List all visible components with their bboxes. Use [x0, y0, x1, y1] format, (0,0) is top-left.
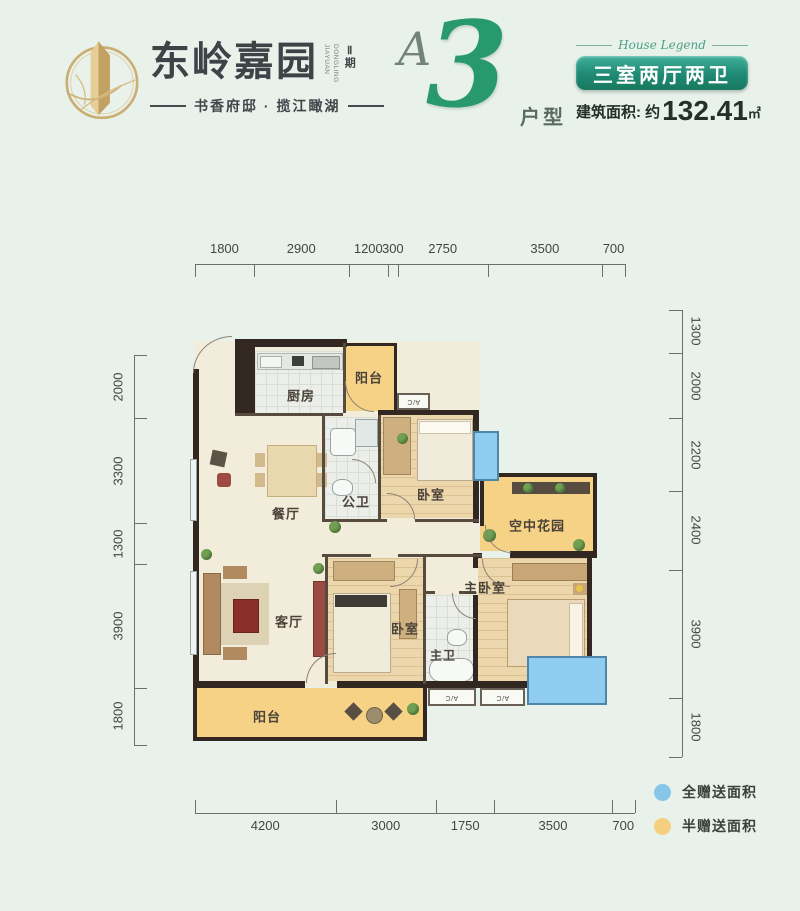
dimension-label: 3000 — [371, 818, 400, 833]
dimension-label: 1800 — [210, 241, 239, 256]
living-sofa — [203, 573, 221, 655]
pillows-bedroom-top — [419, 421, 471, 434]
wall — [322, 415, 325, 522]
room-label-kitchen: 厨房 — [287, 386, 315, 405]
unit-number: 3 — [426, 6, 508, 124]
kitchen-stove — [292, 356, 304, 366]
dimension-tick — [635, 800, 636, 813]
legend-dot-full-gift — [654, 784, 671, 801]
living-coffee-table — [233, 599, 259, 633]
wall — [473, 479, 479, 523]
room-label-sky-garden: 空中花园 — [509, 516, 565, 535]
dimension-ruler-bottom: 4200300017503500700 — [195, 800, 635, 840]
wall — [423, 591, 435, 594]
dimension-line — [682, 310, 683, 757]
wall — [337, 681, 529, 688]
decor-pot — [217, 473, 231, 487]
wardrobe-master — [512, 563, 592, 581]
sink-guest-bath — [330, 428, 356, 456]
dimension-tick — [134, 355, 147, 356]
window-dining — [190, 459, 197, 521]
dimension-tick — [195, 800, 196, 813]
dining-chair — [255, 473, 265, 487]
script-caption: House Legend — [618, 38, 706, 52]
wardrobe-bedroom-top — [383, 417, 411, 475]
window-living — [190, 571, 197, 655]
living-armchair — [223, 566, 247, 579]
wall — [343, 343, 346, 413]
pillows-bedroom-mid — [335, 595, 387, 607]
dimension-label: 300 — [382, 241, 404, 256]
dimension-label: 4200 — [251, 818, 280, 833]
unit-suffix: 户型 — [520, 101, 566, 130]
ac-label: A/C — [445, 694, 458, 701]
ac-label: A/C — [496, 694, 509, 701]
logo-icon — [58, 34, 146, 126]
wall — [193, 681, 305, 688]
plant-icon — [523, 483, 533, 493]
dimension-tick — [336, 800, 337, 813]
dimension-label: 1300 — [689, 317, 704, 346]
unit-info-block: House Legend 三室两厅两卫 建筑面积: 约 132.41 ㎡ — [576, 38, 748, 125]
dimension-label: 1750 — [451, 818, 480, 833]
dimension-label: 700 — [612, 818, 634, 833]
balcony-rail — [423, 685, 427, 741]
floorplan-brochure: { "header": { "logo": { "brand": "东岭嘉园",… — [0, 0, 800, 911]
plant-icon — [397, 433, 408, 444]
ac-label: A/C — [407, 398, 420, 405]
dimension-tick — [195, 264, 196, 277]
plant-icon — [573, 539, 585, 551]
living-armchair — [223, 647, 247, 660]
pillows-master — [569, 603, 583, 663]
room-label-master-bedroom: 主卧室 — [464, 578, 506, 597]
dimension-label: 3500 — [539, 818, 568, 833]
wall — [322, 554, 371, 557]
brand-tagline: 书香府邸 · 揽江瞰湖 — [194, 96, 340, 116]
plant-icon — [313, 563, 324, 574]
dimension-tick — [254, 264, 255, 277]
floor-plan: A/C A/C A/C 厨房 阳台 公卫 卧室 餐厅 空中花园 客厅 卧室 主卧… — [175, 333, 645, 778]
dimension-label: 1200 — [354, 241, 383, 256]
caption-rule-right — [712, 45, 748, 46]
brand-tagline-row: 书香府邸 · 揽江瞰湖 — [150, 96, 384, 116]
shower-guest-bath — [355, 419, 378, 447]
caption-rule-left — [576, 45, 612, 46]
brand-name: 东岭嘉园 — [150, 40, 318, 84]
room-label-balcony-bottom: 阳台 — [253, 707, 281, 726]
dimension-tick — [349, 264, 350, 277]
dimension-label: 1800 — [689, 713, 704, 742]
dimension-ruler-right: 130020002200240039001800 — [669, 310, 709, 757]
dimension-label: 3900 — [689, 619, 704, 648]
room-label-master-bath: 主卫 — [430, 647, 456, 664]
toilet-master-bath — [447, 629, 467, 646]
ac-platform: A/C — [480, 688, 525, 706]
area-unit: ㎡ — [748, 103, 761, 125]
dimension-label: 3900 — [111, 612, 126, 641]
dimension-tick — [134, 745, 147, 746]
dimension-label: 1800 — [111, 702, 126, 731]
wall — [473, 410, 479, 433]
balcony-rail — [193, 685, 197, 741]
dimension-label: 2200 — [689, 440, 704, 469]
dimension-tick — [134, 418, 147, 419]
layout-badge: 三室两厅两卫 — [576, 56, 748, 90]
kitchen-sink — [260, 356, 282, 368]
plant-icon — [407, 703, 419, 715]
dimension-tick — [625, 264, 626, 277]
dimension-tick — [398, 264, 399, 277]
dimension-tick — [669, 310, 682, 311]
balcony-rail — [345, 343, 397, 346]
dimension-ruler-left: 20003300130039001800 — [108, 355, 147, 745]
dimension-tick — [488, 264, 489, 277]
dimension-tick — [602, 264, 603, 277]
dimension-tick — [612, 800, 613, 813]
wall — [473, 558, 478, 568]
plant-icon — [329, 521, 341, 533]
legend-label-half-gift: 半赠送面积 — [682, 816, 757, 836]
tagline-rule-left — [150, 105, 186, 107]
area-row: 建筑面积: 约 132.41 ㎡ — [576, 97, 748, 125]
ac-platform: A/C — [428, 688, 476, 706]
brand-latin: DONGLING JIAYUAN — [322, 44, 340, 88]
dimension-line — [195, 813, 635, 814]
dimension-label: 2400 — [689, 516, 704, 545]
dimension-label: 3300 — [111, 456, 126, 485]
wardrobe-bedroom-mid — [333, 561, 395, 581]
dimension-tick — [494, 800, 495, 813]
wall — [235, 413, 343, 416]
script-caption-row: House Legend — [576, 38, 748, 52]
wall — [593, 473, 597, 557]
wall — [587, 558, 592, 658]
decor-plant-stand — [210, 450, 228, 468]
wall — [415, 519, 479, 522]
brand-block: 东岭嘉园 DONGLING JIAYUAN Ⅱ期 — [150, 40, 357, 88]
balcony-rail — [193, 737, 427, 741]
wall — [378, 415, 381, 522]
room-label-guest-bath: 公卫 — [342, 492, 370, 511]
wall — [378, 519, 387, 522]
brand-phase: Ⅱ期 — [341, 44, 357, 84]
dimension-line — [195, 264, 625, 265]
dimension-tick — [669, 570, 682, 571]
legend-label-full-gift: 全赠送面积 — [682, 782, 757, 802]
window-bedroom-top — [473, 431, 499, 481]
legend-item-half-gift: 半赠送面积 — [654, 816, 757, 836]
wall — [423, 556, 426, 684]
area-label: 建筑面积: 约 — [576, 101, 660, 125]
legend-item-full-gift: 全赠送面积 — [654, 782, 757, 802]
dimension-tick — [436, 800, 437, 813]
balcony-table — [366, 707, 383, 724]
legend-dot-half-gift — [654, 818, 671, 835]
wall — [398, 554, 482, 557]
room-label-bedroom-top: 卧室 — [417, 485, 445, 504]
dimension-tick — [669, 491, 682, 492]
room-label-living: 客厅 — [275, 612, 303, 631]
room-label-bedroom-mid: 卧室 — [391, 619, 419, 638]
dimension-tick — [669, 353, 682, 354]
plant-icon — [201, 549, 212, 560]
plant-icon — [555, 483, 565, 493]
area-value: 132.41 — [662, 97, 748, 125]
dimension-label: 700 — [603, 241, 625, 256]
dimension-tick — [388, 264, 389, 277]
dimension-label: 2750 — [428, 241, 457, 256]
dimension-tick — [669, 757, 682, 758]
dining-chair — [255, 453, 265, 467]
wall — [510, 551, 597, 558]
dimension-label: 3500 — [530, 241, 559, 256]
dimension-tick — [669, 418, 682, 419]
lamp-master — [576, 585, 583, 592]
dimension-tick — [669, 698, 682, 699]
room-label-balcony-top: 阳台 — [355, 368, 383, 387]
kitchen-cooktop — [312, 356, 340, 369]
dimension-label: 2000 — [111, 372, 126, 401]
dining-table — [267, 445, 317, 497]
wall — [378, 410, 479, 415]
tagline-rule-right — [348, 105, 384, 107]
dimension-label: 2000 — [689, 371, 704, 400]
wall — [480, 476, 484, 526]
dimension-tick — [134, 564, 147, 565]
room-label-dining: 餐厅 — [272, 504, 300, 523]
ac-platform: A/C — [397, 393, 430, 410]
dimension-label: 2900 — [287, 241, 316, 256]
dimension-line — [134, 355, 135, 745]
bay-window-master — [527, 656, 607, 705]
dimension-tick — [134, 523, 147, 524]
dimension-label: 1300 — [111, 529, 126, 558]
dimension-ruler-top: 18002900120030027503500700 — [195, 238, 625, 278]
wall — [235, 345, 255, 415]
dimension-tick — [134, 688, 147, 689]
